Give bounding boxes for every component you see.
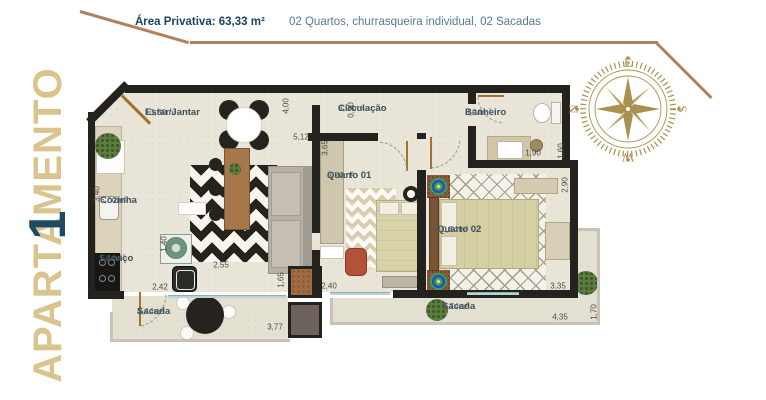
sofa-cushion (271, 220, 301, 268)
pillow (441, 236, 457, 266)
dimension-label: 4,35 (552, 313, 568, 322)
dimension-label: 3,35 (550, 282, 566, 291)
glass-door-living-balcony (168, 295, 286, 298)
bedroom2-dresser (514, 178, 558, 194)
sofa-back (303, 166, 312, 274)
wall-bathroom-left-stub (468, 92, 476, 104)
burner (99, 275, 106, 282)
railing (330, 298, 333, 325)
bathroom-sink (497, 141, 523, 159)
railing (110, 312, 113, 342)
bedroom2-wardrobe (545, 222, 570, 260)
kitchen-bar (224, 148, 250, 230)
wall-bedrooms-divider (417, 170, 426, 298)
wall-mirror-center (407, 190, 415, 198)
room-area: 1,74m² (99, 253, 125, 264)
dimension-label: 4,00 (282, 98, 291, 114)
floor-plan-page: Área Privativa: 63,33 m² 02 Quartos, chu… (0, 0, 766, 400)
wall-right-lower (570, 160, 578, 298)
room-area: 6,00m² (100, 195, 126, 206)
balcony-table (186, 296, 224, 334)
balcony-chair (222, 305, 236, 319)
dimension-label: 2,40 (321, 282, 337, 291)
kitchen-island (178, 202, 206, 215)
laundry-tub (172, 266, 197, 292)
room-area: 3,74m² (442, 301, 468, 312)
dimension-label: 1,60 (557, 143, 566, 159)
bedroom2-door (430, 137, 432, 169)
tie-dye-rug (430, 178, 447, 195)
dimension-label: 1,90 (525, 149, 541, 158)
room-area: 3,04m² (465, 107, 491, 118)
dimension-label: 3,65 (321, 140, 330, 156)
dining-table (226, 107, 262, 143)
bedroom1-door (406, 141, 408, 171)
dimension-label: 2,90 (561, 177, 570, 193)
room-area: 4,44m² (137, 306, 163, 317)
bedroom1-bench (382, 276, 420, 288)
dimension-label: 3,40 (93, 186, 102, 202)
dimension-label: 2,55 (213, 261, 229, 270)
pillow (379, 202, 399, 215)
dimension-label: 1,40 (160, 236, 169, 252)
wall-living-right-lower (312, 250, 320, 298)
laundry-tub-basin (176, 270, 195, 290)
compass-rose-icon (563, 44, 693, 174)
room-area: 13,30m² (145, 107, 176, 118)
bar-stool (209, 158, 222, 171)
room-area: 8,76m² (327, 170, 353, 181)
glass-door-bedroom1-balcony (330, 292, 390, 295)
burner (108, 275, 115, 282)
wall-bedrooms-divider-stub (417, 133, 426, 139)
wall-bedroom1-bottom (393, 290, 430, 298)
railing (330, 322, 600, 325)
dimension-label: 2,42 (152, 283, 168, 292)
bedroom1-armchair (345, 248, 367, 276)
bedside-mat (427, 175, 450, 198)
glass-door-bedroom2-balcony (467, 292, 519, 295)
dimension-label: 1,65 (277, 272, 286, 288)
dimension-label: 1,70 (590, 304, 599, 320)
wall-top (125, 85, 570, 93)
sofa-cushion (271, 172, 301, 216)
toilet-tank (551, 102, 561, 124)
dimension-label: 3,77 (267, 323, 283, 332)
bar-stool (209, 183, 222, 196)
dimension-label: 5,12 (293, 133, 309, 142)
bedroom1-shelf (320, 246, 344, 259)
bathroom-door (478, 95, 504, 97)
room-area: 10,54m² (437, 224, 468, 235)
railing (110, 339, 290, 342)
wall-bathroom-bottom (475, 160, 570, 168)
plant (95, 133, 121, 159)
tie-dye-rug (430, 273, 447, 290)
wall-service-bottom (88, 291, 124, 299)
wall-living-right (312, 105, 320, 233)
dimension-label: 0,90 (347, 102, 356, 118)
bar-plant (229, 163, 241, 175)
toilet (533, 103, 551, 123)
railing (578, 228, 600, 231)
bar-stool (209, 208, 222, 221)
wall-left (88, 112, 95, 298)
planter-box (288, 302, 322, 338)
